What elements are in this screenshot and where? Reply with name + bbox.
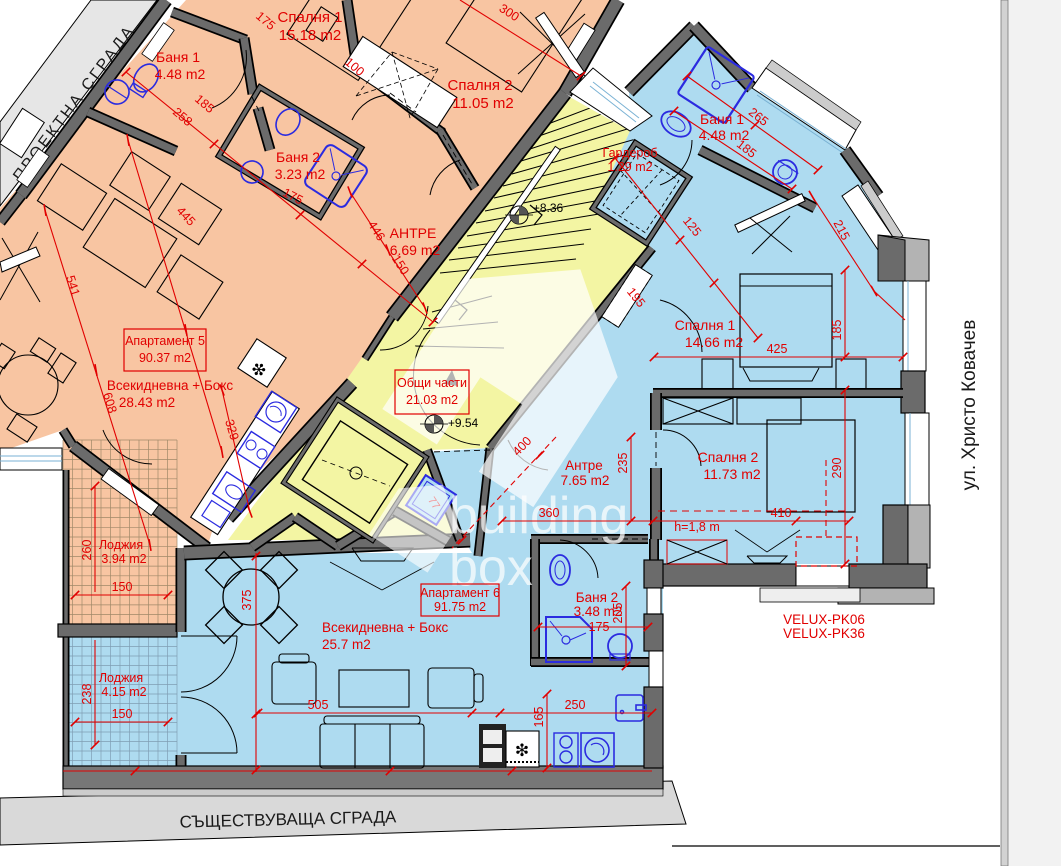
svg-text:28.43 m2: 28.43 m2 — [119, 395, 175, 410]
svg-text:Спалня 1: Спалня 1 — [675, 317, 736, 333]
svg-text:Гардероб: Гардероб — [603, 146, 658, 160]
svg-text:150: 150 — [112, 580, 133, 594]
svg-text:165: 165 — [532, 707, 546, 728]
svg-text:260: 260 — [80, 540, 94, 561]
svg-text:Баня 1: Баня 1 — [700, 111, 744, 127]
svg-text:185: 185 — [830, 320, 844, 341]
svg-text:90.37 m2: 90.37 m2 — [139, 351, 191, 365]
svg-text:11.05 m2: 11.05 m2 — [452, 95, 513, 112]
svg-text:410: 410 — [771, 506, 792, 520]
svg-text:15.18 m2: 15.18 m2 — [279, 27, 342, 44]
svg-text:3.94 m2: 3.94 m2 — [101, 552, 146, 566]
svg-text:425: 425 — [767, 342, 788, 356]
svg-text:Спалня 2: Спалня 2 — [698, 449, 759, 465]
svg-text:14.66 m2: 14.66 m2 — [685, 334, 744, 350]
svg-text:❇: ❇ — [515, 741, 529, 760]
svg-text:505: 505 — [308, 698, 329, 712]
svg-text:3.23 m2: 3.23 m2 — [275, 166, 326, 182]
svg-text:Спалня 2: Спалня 2 — [448, 77, 513, 94]
svg-text:+8.36: +8.36 — [533, 201, 564, 215]
svg-text:ул. Христо Ковачев: ул. Христо Ковачев — [959, 320, 980, 491]
svg-text:4.15 m2: 4.15 m2 — [101, 685, 146, 699]
svg-text:175: 175 — [589, 620, 610, 634]
svg-text:1.29 m2: 1.29 m2 — [607, 160, 652, 174]
svg-text:25.7 m2: 25.7 m2 — [322, 637, 371, 652]
svg-text:VELUX-PK06: VELUX-PK06 — [783, 612, 865, 627]
svg-text:205: 205 — [611, 603, 625, 624]
svg-text:4.48 m2: 4.48 m2 — [155, 66, 206, 82]
svg-text:Апартамент 6: Апартамент 6 — [420, 586, 500, 600]
svg-text:Антре: Антре — [565, 458, 603, 473]
svg-text:Баня 1: Баня 1 — [156, 49, 200, 65]
svg-text:Всекидневна + Бокс: Всекидневна + Бокс — [107, 378, 233, 393]
svg-text:Лоджия: Лоджия — [99, 671, 143, 685]
svg-text:235: 235 — [616, 453, 630, 474]
svg-text:11.73 m2: 11.73 m2 — [703, 466, 761, 482]
svg-text:360: 360 — [539, 506, 560, 520]
svg-text:Спалня 1: Спалня 1 — [278, 9, 343, 26]
svg-text:АНТРЕ: АНТРЕ — [390, 225, 437, 241]
svg-text:375: 375 — [240, 590, 254, 611]
svg-text:7.65 m2: 7.65 m2 — [561, 473, 610, 488]
svg-text:Баня 2: Баня 2 — [276, 149, 320, 165]
svg-text:+9.54: +9.54 — [448, 416, 479, 430]
svg-text:91.75 m2: 91.75 m2 — [434, 600, 486, 614]
svg-text:h=1,8 m: h=1,8 m — [674, 520, 720, 534]
svg-text:238: 238 — [80, 684, 94, 705]
svg-text:290: 290 — [830, 458, 844, 479]
svg-text:VELUX-PK36: VELUX-PK36 — [783, 626, 865, 641]
svg-text:150: 150 — [112, 707, 133, 721]
svg-text:Лоджия: Лоджия — [99, 538, 143, 552]
svg-text:Апартамент 5: Апартамент 5 — [125, 334, 205, 348]
svg-text:Общи части: Общи части — [397, 376, 467, 390]
svg-text:Всекидневна + Бокс: Всекидневна + Бокс — [322, 620, 448, 635]
svg-text:21.03 m2: 21.03 m2 — [406, 393, 458, 407]
svg-text:250: 250 — [565, 698, 586, 712]
